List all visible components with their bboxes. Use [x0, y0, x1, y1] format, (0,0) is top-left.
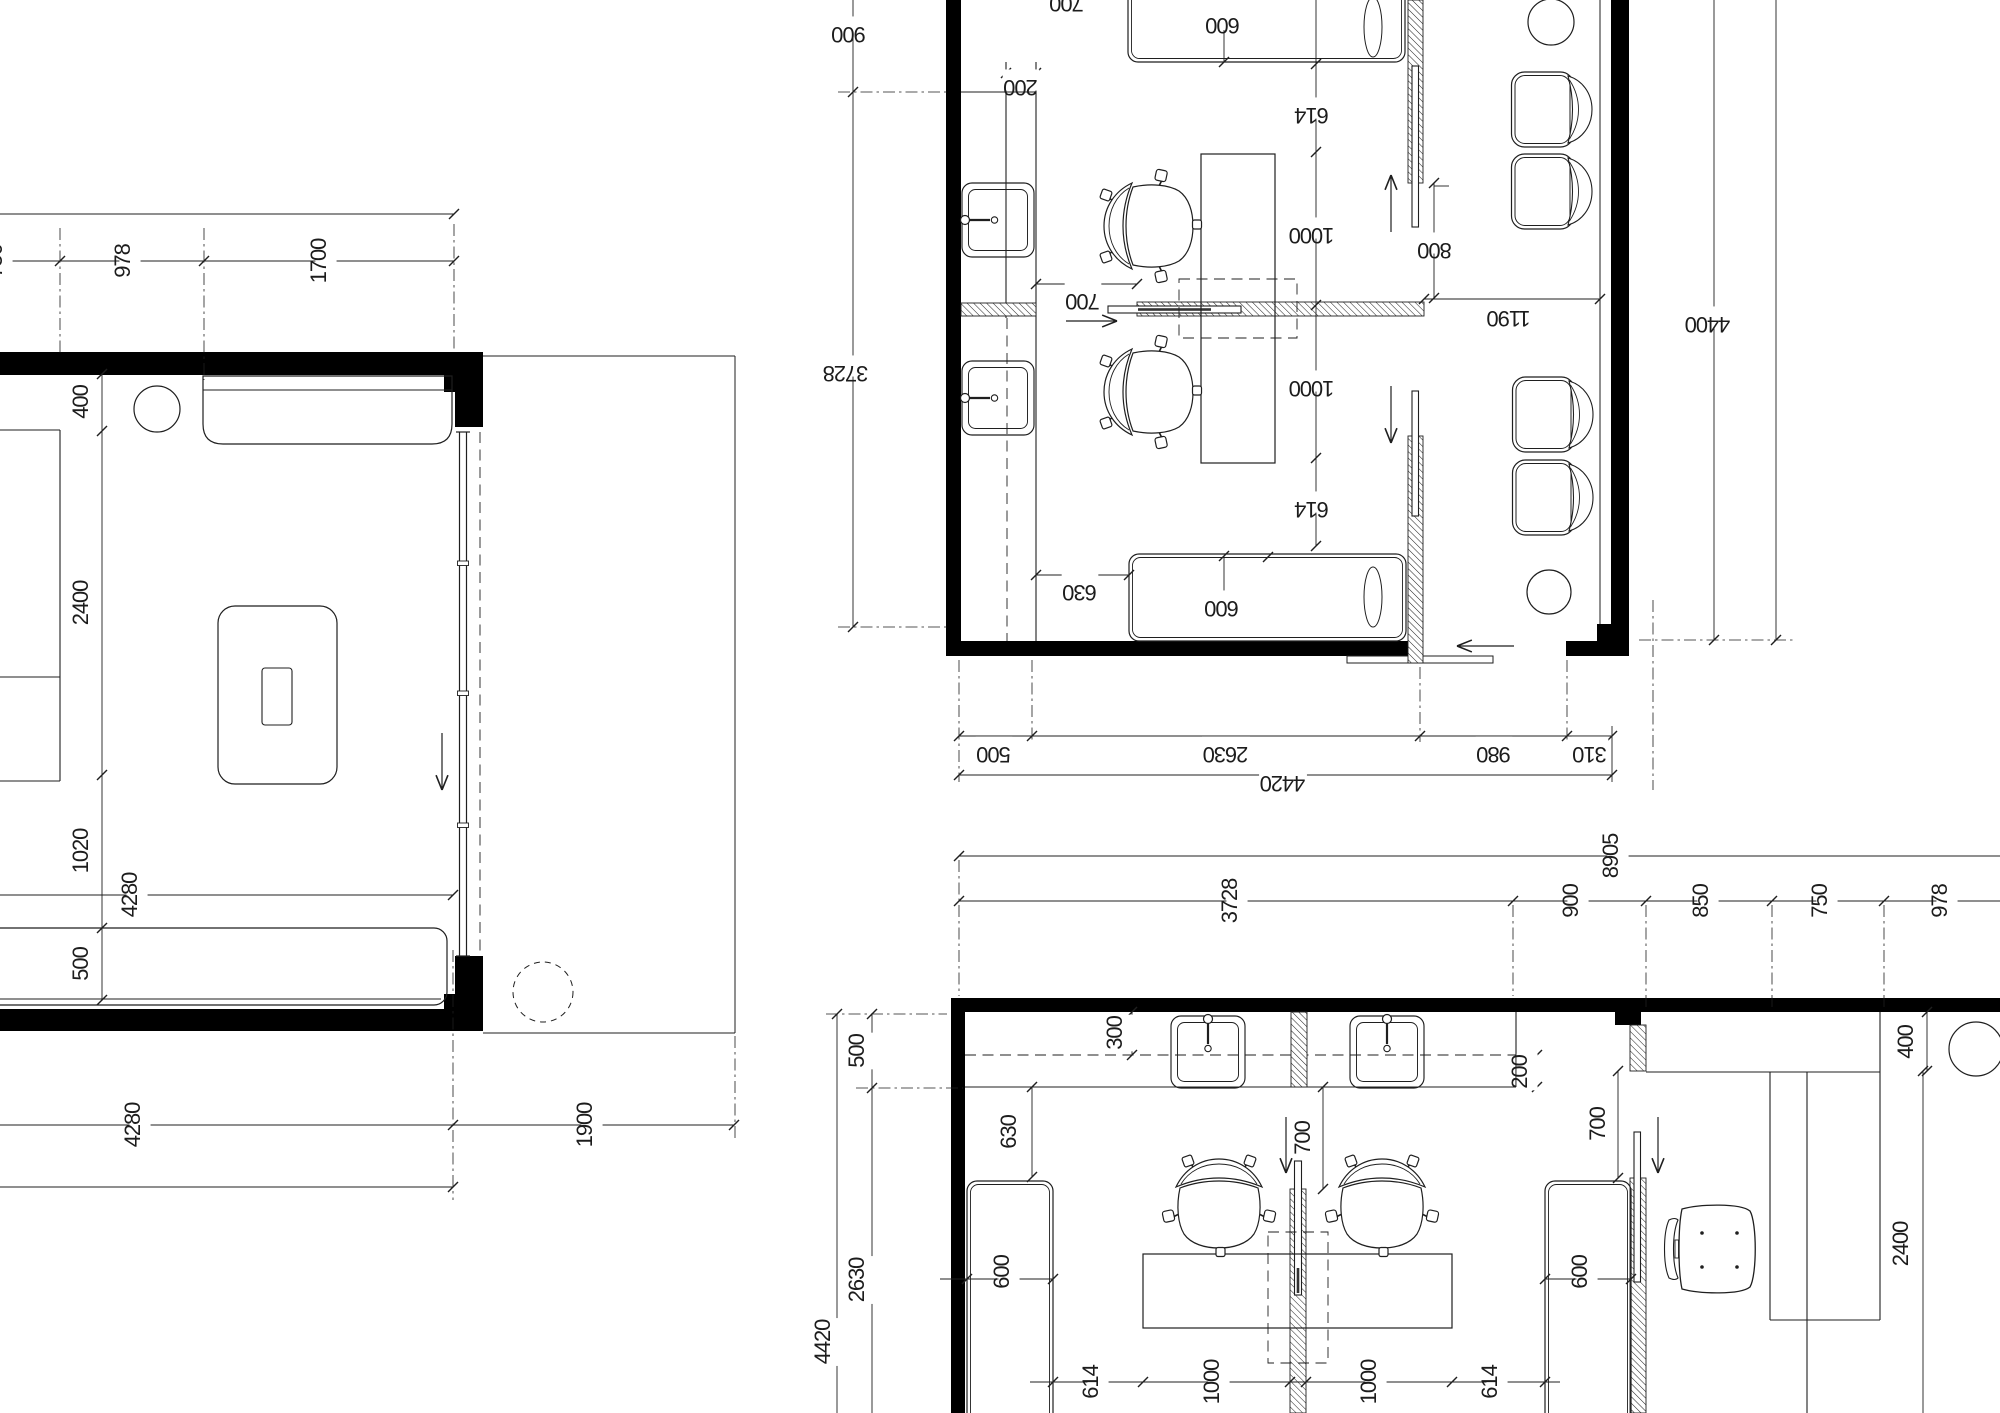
svg-text:2400: 2400 — [68, 580, 93, 625]
svg-text:600: 600 — [1205, 13, 1239, 38]
svg-text:8905: 8905 — [1598, 833, 1623, 878]
svg-text:614: 614 — [1294, 497, 1328, 522]
svg-text:1700: 1700 — [306, 238, 331, 283]
svg-text:4280: 4280 — [120, 1102, 145, 1147]
svg-text:3728: 3728 — [1217, 878, 1242, 923]
svg-text:4280: 4280 — [117, 872, 142, 917]
svg-text:500: 500 — [844, 1033, 869, 1067]
svg-text:978: 978 — [1927, 883, 1952, 917]
svg-text:614: 614 — [1078, 1364, 1103, 1398]
svg-text:200: 200 — [1507, 1054, 1532, 1088]
svg-text:400: 400 — [68, 384, 93, 418]
svg-text:700: 700 — [1065, 289, 1099, 314]
svg-text:900: 900 — [831, 22, 865, 47]
svg-text:200: 200 — [1003, 75, 1037, 100]
svg-text:700: 700 — [1585, 1106, 1610, 1140]
svg-text:980: 980 — [1476, 742, 1510, 767]
svg-text:600: 600 — [1567, 1254, 1592, 1288]
svg-text:1900: 1900 — [572, 1102, 597, 1147]
svg-text:900: 900 — [1558, 883, 1583, 917]
svg-text:310: 310 — [1572, 742, 1606, 767]
svg-text:4400: 4400 — [1685, 312, 1730, 337]
svg-text:4420: 4420 — [810, 1319, 835, 1364]
svg-text:614: 614 — [1294, 103, 1328, 128]
svg-text:1000: 1000 — [1356, 1359, 1381, 1404]
svg-text:2400: 2400 — [1888, 1221, 1913, 1266]
svg-text:700: 700 — [1049, 0, 1083, 16]
svg-text:1020: 1020 — [68, 828, 93, 873]
svg-text:750: 750 — [1807, 883, 1832, 917]
svg-text:2630: 2630 — [1203, 742, 1248, 767]
svg-text:600: 600 — [1204, 596, 1238, 621]
svg-text:500: 500 — [976, 742, 1010, 767]
svg-text:630: 630 — [996, 1114, 1021, 1148]
svg-text:700: 700 — [1290, 1120, 1315, 1154]
svg-text:300: 300 — [1102, 1015, 1127, 1049]
svg-text:4420: 4420 — [1260, 771, 1305, 796]
svg-text:600: 600 — [989, 1254, 1014, 1288]
svg-text:2630: 2630 — [844, 1257, 869, 1302]
svg-text:500: 500 — [68, 946, 93, 980]
svg-text:978: 978 — [110, 243, 135, 277]
svg-text:1000: 1000 — [1289, 376, 1334, 401]
svg-text:1000: 1000 — [1199, 1359, 1224, 1404]
svg-text:614: 614 — [1477, 1364, 1502, 1398]
svg-text:750: 750 — [0, 243, 7, 277]
svg-text:800: 800 — [1417, 238, 1451, 263]
svg-text:1190: 1190 — [1487, 306, 1531, 331]
svg-text:3728: 3728 — [823, 361, 868, 386]
svg-text:630: 630 — [1062, 580, 1096, 605]
svg-text:1000: 1000 — [1289, 223, 1334, 248]
svg-text:850: 850 — [1688, 883, 1713, 917]
svg-text:400: 400 — [1893, 1024, 1918, 1058]
